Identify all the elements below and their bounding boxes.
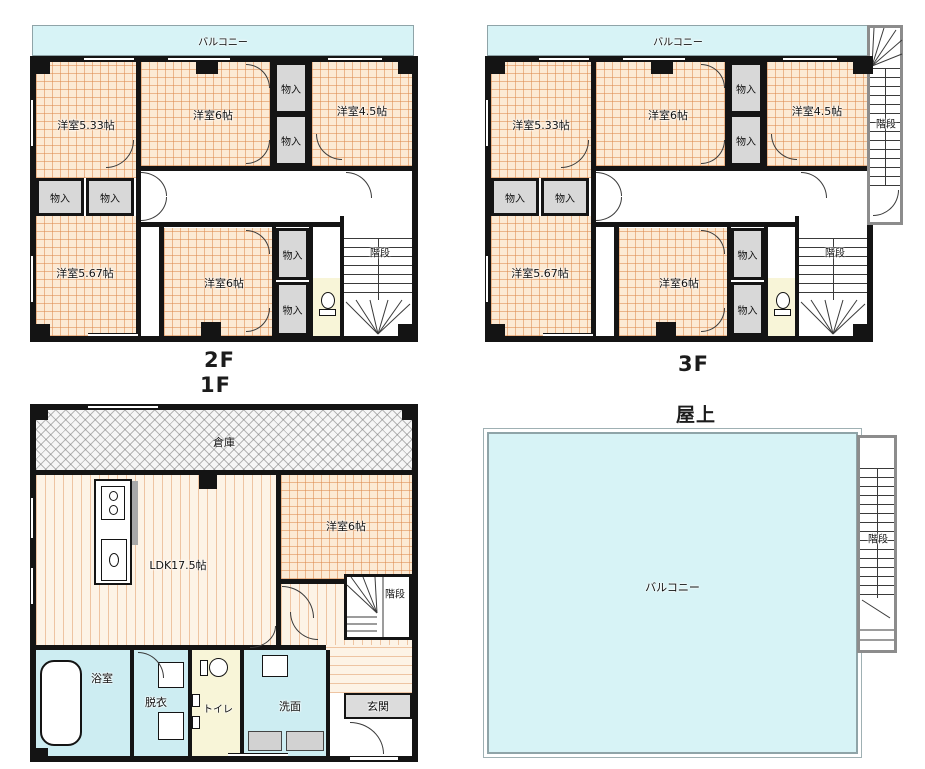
hand-basin-icon xyxy=(192,716,200,729)
closet-label: 物入 xyxy=(505,190,525,205)
closet: 物入 xyxy=(274,62,308,114)
kitchen-counter-icon xyxy=(94,479,132,585)
stairs-1f-label: 階段 xyxy=(385,586,405,601)
closet: 物入 xyxy=(731,282,764,336)
room-3f-s-label: 洋室6帖 xyxy=(659,275,699,291)
room-ldk-label: LDK17.5帖 xyxy=(149,557,206,573)
entrance: 玄関 xyxy=(344,693,412,719)
roof-balcony-label: バルコニー xyxy=(645,579,700,595)
stair-winder xyxy=(870,28,904,68)
window-gap xyxy=(350,756,398,761)
washroom: 洗面 xyxy=(244,650,326,756)
room-2f-sw-label: 洋室5.67帖 xyxy=(56,265,114,281)
toilet-tank-icon xyxy=(774,309,791,316)
closet-label: 物入 xyxy=(736,81,756,96)
balcony-2f-label: バルコニー xyxy=(198,33,248,48)
pillar xyxy=(30,324,50,342)
window-gap xyxy=(783,57,837,61)
closet-label: 物入 xyxy=(100,190,120,205)
bath-room: 浴室 xyxy=(36,650,130,756)
closet: 物入 xyxy=(729,114,763,166)
toilet-tank-icon xyxy=(200,660,208,676)
window-gap xyxy=(30,498,34,538)
closet: 物入 xyxy=(86,178,134,216)
room-3f-sw-label: 洋室5.67帖 xyxy=(511,265,569,281)
pillar xyxy=(30,748,48,760)
closet-label: 物入 xyxy=(555,190,575,205)
toilet-room-3f xyxy=(768,278,797,336)
bath-label: 浴室 xyxy=(91,670,113,686)
pillar xyxy=(656,322,676,338)
pillar xyxy=(853,324,873,342)
toilet-room-1f: トイレ xyxy=(192,650,240,756)
balcony-3f: バルコニー xyxy=(487,25,869,56)
balcony-3f-label: バルコニー xyxy=(653,33,703,48)
plan-roof: 屋上 バルコニー 階段 xyxy=(483,398,915,769)
window-gap xyxy=(485,256,489,302)
window-gap xyxy=(88,333,138,337)
exterior-stairs-3f-label: 階段 xyxy=(876,116,896,131)
plan-2f: バルコニー 洋室5.33帖 物入 物入 洋室5.67帖 洋室6帖 物入 物入 洋… xyxy=(28,20,460,400)
window-gap xyxy=(168,57,230,61)
closet-label: 物入 xyxy=(738,247,758,262)
pillar xyxy=(485,324,505,342)
window-gap xyxy=(88,405,158,409)
caption-2f: 2F xyxy=(204,348,235,372)
closet: 物入 xyxy=(541,178,589,216)
exterior-stairs-3f: 階段 xyxy=(867,25,903,225)
wall xyxy=(595,222,799,227)
closet: 物入 xyxy=(731,228,764,280)
stair-run xyxy=(860,598,894,648)
caption-3f: 3F xyxy=(678,352,709,376)
hallway-entrance xyxy=(326,645,412,693)
window-gap xyxy=(84,57,134,61)
window-gap xyxy=(328,57,382,61)
room-1f-western-label: 洋室6帖 xyxy=(326,518,366,534)
wall xyxy=(140,166,412,171)
window-gap xyxy=(485,100,489,146)
closet-label: 物入 xyxy=(281,133,301,148)
warehouse-label: 倉庫 xyxy=(213,434,235,450)
room-2f-nw-label: 洋室5.33帖 xyxy=(57,117,115,133)
closet-label: 物入 xyxy=(283,302,303,317)
room-2f-s-label: 洋室6帖 xyxy=(204,275,244,291)
plan-3f: バルコニー 洋室5.33帖 物入 物入 洋室5.67帖 洋室6帖 物入 物入 洋… xyxy=(483,20,915,400)
urinal-icon xyxy=(192,694,200,707)
window-gap xyxy=(30,256,34,302)
toilet-label: トイレ xyxy=(203,701,233,716)
window-gap xyxy=(30,100,34,146)
closet: 物入 xyxy=(276,228,309,280)
pillar xyxy=(201,322,221,338)
room-2f-n-label: 洋室6帖 xyxy=(193,107,233,123)
pillar xyxy=(199,475,217,489)
floorplan-sheet: { "labels": { "balcony": "バルコニー", "close… xyxy=(0,0,925,769)
closet-label: 物入 xyxy=(283,247,303,262)
pillar xyxy=(30,404,48,420)
closet-label: 物入 xyxy=(50,190,70,205)
room-3f-nw-label: 洋室5.33帖 xyxy=(512,117,570,133)
room-3f-ne-label: 洋室4.5帖 xyxy=(792,103,843,119)
toilet-icon xyxy=(776,292,790,309)
closet: 物入 xyxy=(729,62,763,114)
closet: 物入 xyxy=(36,178,84,216)
burner-icon xyxy=(109,505,118,515)
entrance-label: 玄関 xyxy=(367,698,389,714)
stairs-2f-label: 階段 xyxy=(370,245,390,260)
room-3f-n-label: 洋室6帖 xyxy=(648,107,688,123)
pillar xyxy=(485,56,505,74)
vanity-icon xyxy=(262,655,288,677)
pillar xyxy=(853,56,873,74)
counter-edge xyxy=(132,481,138,545)
closet: 物入 xyxy=(491,178,539,216)
stove-icon xyxy=(101,486,125,520)
washer-pan-icon xyxy=(248,731,282,751)
toilet-icon xyxy=(321,292,335,309)
balcony-2f: バルコニー xyxy=(32,25,414,56)
window-gap xyxy=(543,333,593,337)
room-2f-ne-label: 洋室4.5帖 xyxy=(337,103,388,119)
pillar xyxy=(402,404,416,420)
window-gap xyxy=(30,568,34,604)
closet-label: 物入 xyxy=(736,133,756,148)
wall xyxy=(326,650,330,756)
toilet-room-2f xyxy=(313,278,342,336)
burner-icon xyxy=(109,491,118,501)
closet: 物入 xyxy=(274,114,308,166)
pillar xyxy=(398,324,418,342)
toilet-tank-icon xyxy=(319,309,336,316)
wall xyxy=(595,166,867,171)
caption-roof: 屋上 xyxy=(676,400,716,427)
window-gap xyxy=(539,57,589,61)
window-gap xyxy=(623,57,685,61)
bathtub-icon xyxy=(40,660,82,746)
toilet-icon xyxy=(209,658,228,677)
closet: 物入 xyxy=(276,282,309,336)
caption-1f: 1F xyxy=(200,373,231,397)
closet-label: 物入 xyxy=(738,302,758,317)
washroom-label: 洗面 xyxy=(279,698,301,714)
window-gap xyxy=(228,753,288,757)
stairs-1f: 階段 xyxy=(344,574,412,640)
washer-pan-icon xyxy=(286,731,324,751)
stairs-3f-label: 階段 xyxy=(825,245,845,260)
roof-balcony: バルコニー xyxy=(487,432,858,754)
stairs-2f: 階段 xyxy=(344,216,412,336)
washer-icon xyxy=(158,712,184,740)
sink-icon xyxy=(101,539,127,581)
pillar xyxy=(398,56,418,74)
dressing-label: 脱衣 xyxy=(145,694,167,710)
exterior-stairs-roof: 階段 xyxy=(857,435,897,653)
sink-basin-icon xyxy=(109,553,119,567)
pillar xyxy=(30,56,50,74)
door-arc xyxy=(873,190,899,216)
stairs-3f: 階段 xyxy=(799,216,867,336)
wall xyxy=(140,222,344,227)
plan-1f: 倉庫 LDK17.5帖 洋室6帖 階段 xyxy=(28,398,460,769)
exterior-stairs-roof-label: 階段 xyxy=(868,531,888,546)
closet-label: 物入 xyxy=(281,81,301,96)
